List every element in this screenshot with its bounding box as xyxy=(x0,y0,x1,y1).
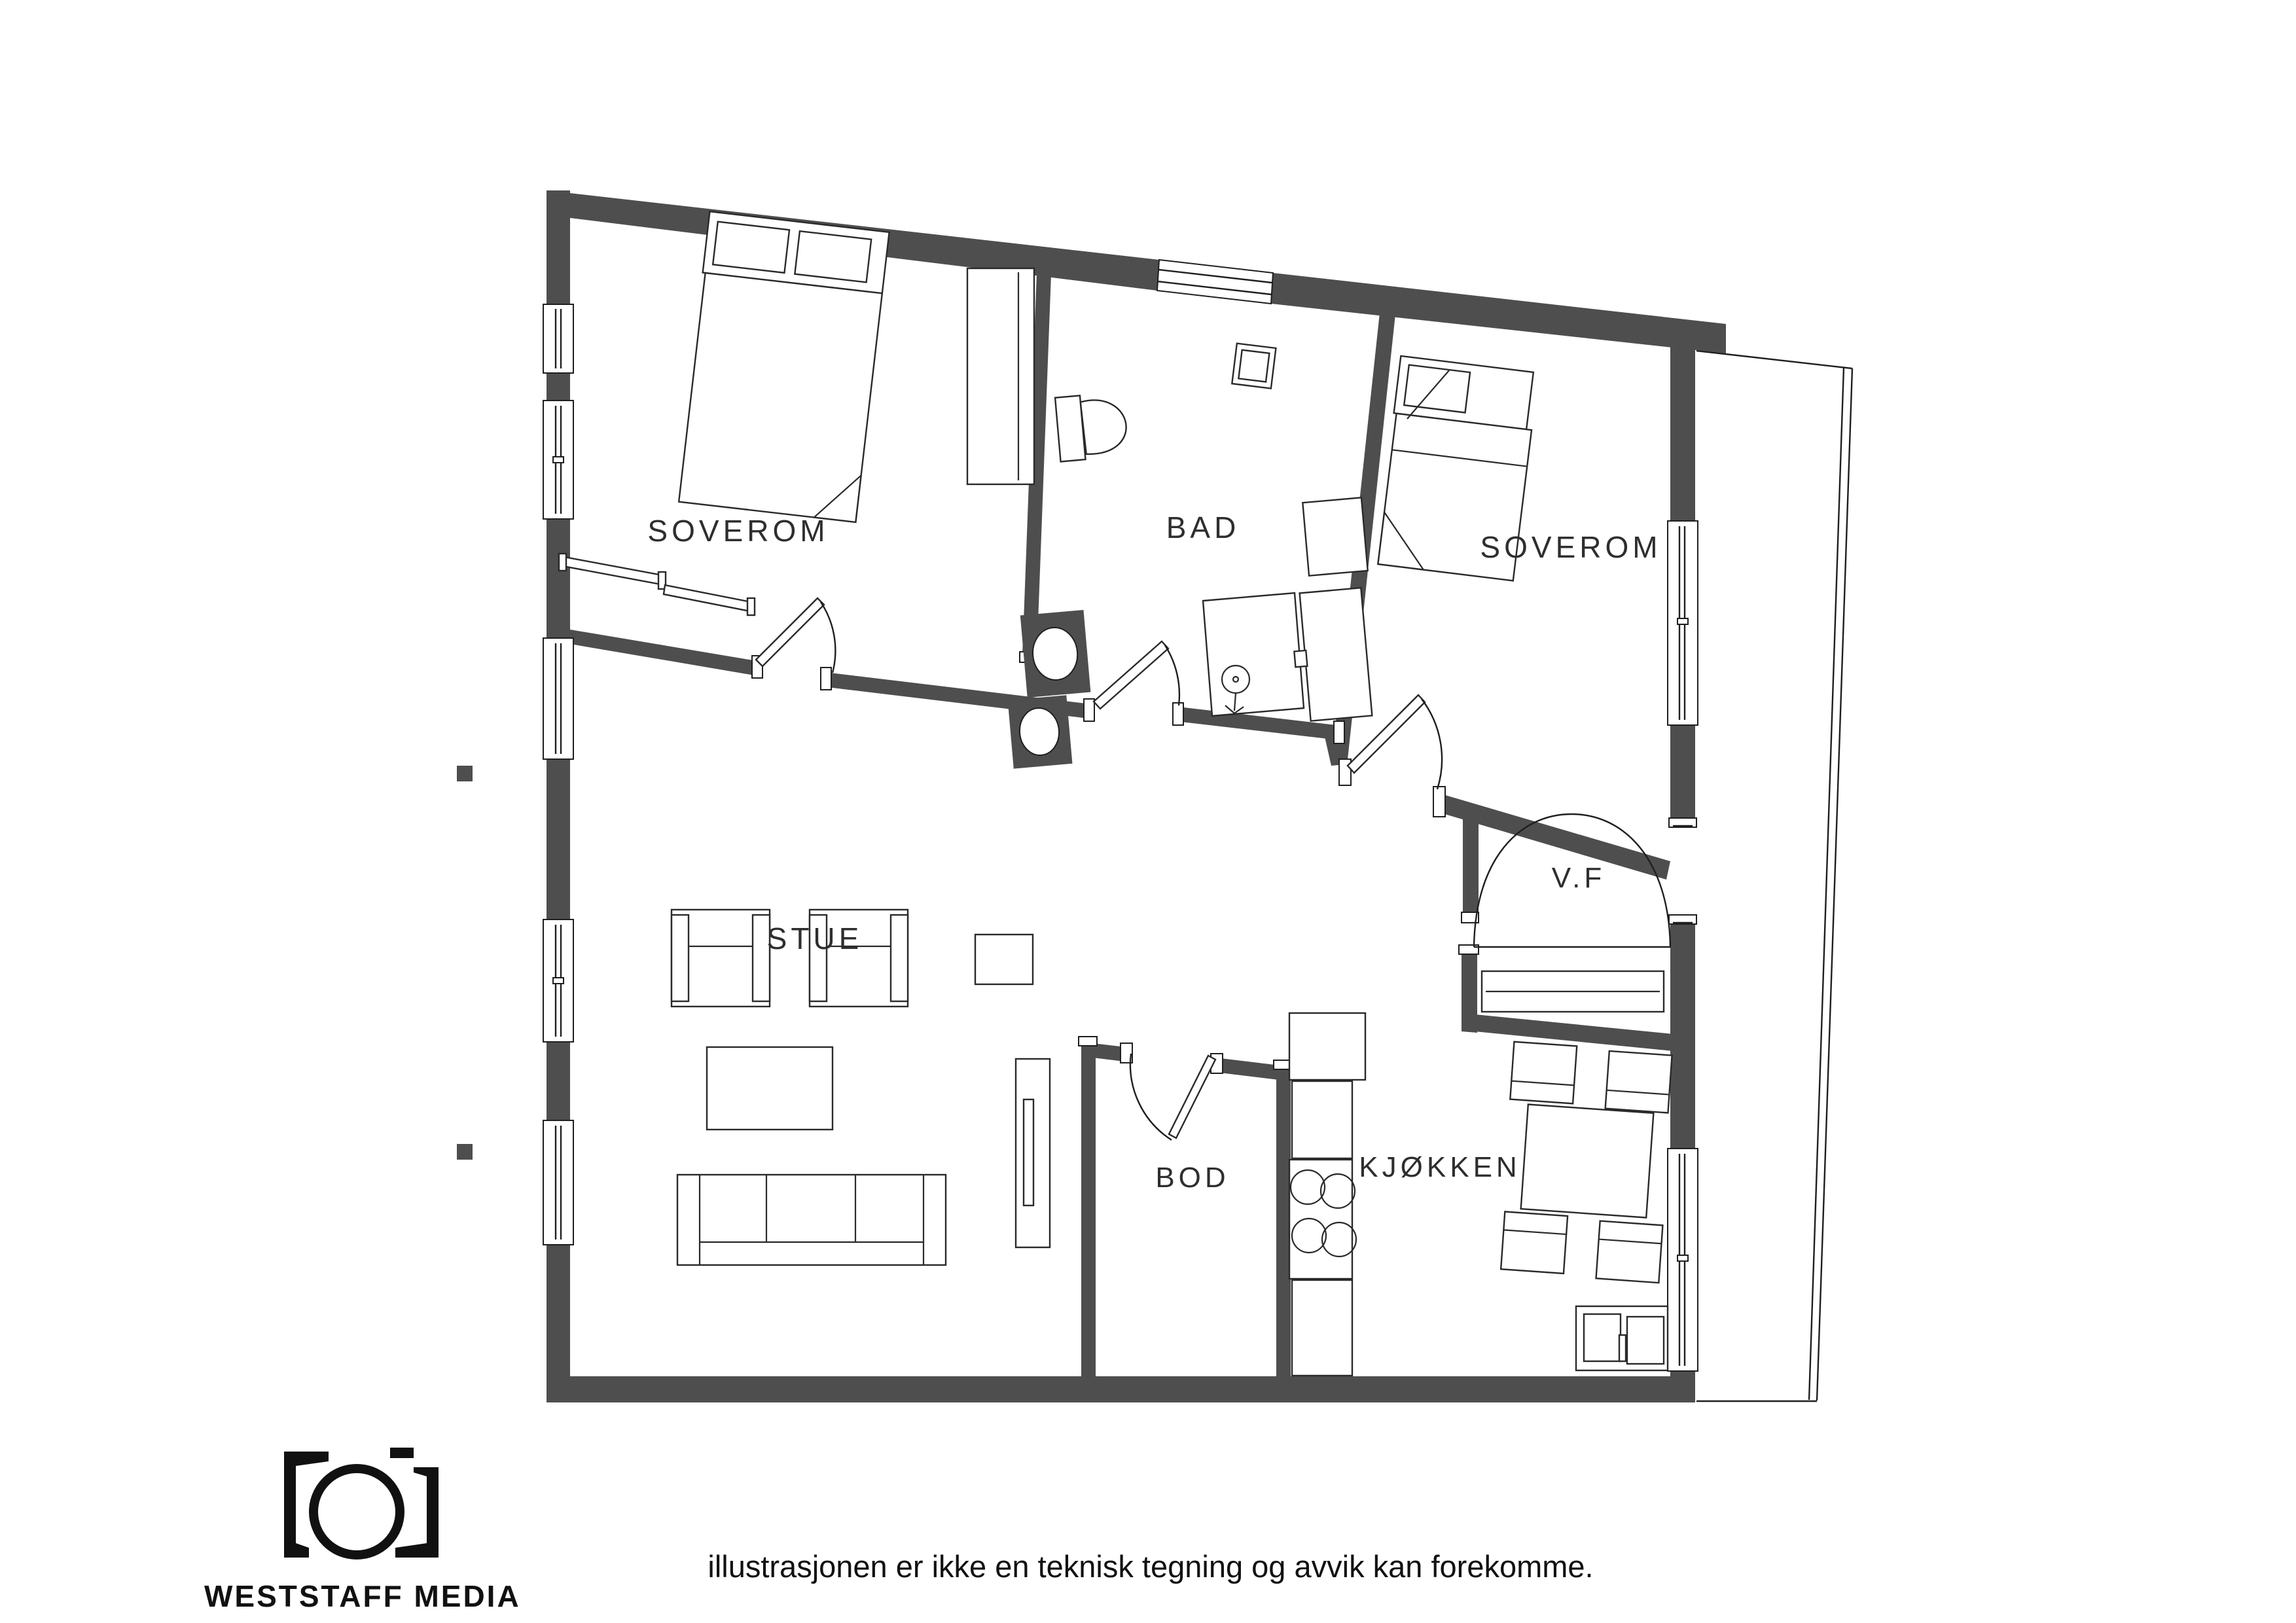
entry-closet xyxy=(1482,971,1664,1012)
coffee-table xyxy=(707,1047,833,1130)
stove xyxy=(1289,1160,1356,1279)
plan-marker-bottom xyxy=(457,1144,473,1160)
bathroom-sink xyxy=(1232,344,1276,389)
room-label-entry: V.F xyxy=(1552,862,1605,894)
window-left-4 xyxy=(543,919,573,1042)
kitchen-sink xyxy=(1576,1306,1668,1370)
room-label-bedroom2: SOVEROM xyxy=(1480,530,1661,564)
window-left-2 xyxy=(543,401,573,519)
kitchen-counter-2 xyxy=(1292,1280,1352,1376)
double-bed xyxy=(676,211,889,522)
side-table xyxy=(975,935,1033,984)
room-label-bedroom1: SOVEROM xyxy=(647,514,829,548)
footer: WESTSTAFF MEDIA illustrasjonen er ikke e… xyxy=(204,1448,1594,1613)
kitchen-cabinet-top xyxy=(1289,1013,1365,1080)
room-label-living: STUE xyxy=(767,921,863,955)
dining-chair xyxy=(1596,1221,1663,1283)
sofa xyxy=(677,1175,946,1265)
room-label-bathroom: BAD xyxy=(1166,510,1240,544)
window-left-3 xyxy=(543,638,573,759)
room-label-kitchen: KJØKKEN xyxy=(1359,1151,1520,1183)
dining-table xyxy=(1521,1105,1654,1218)
camera-logo-icon xyxy=(284,1448,439,1558)
window-left-5 xyxy=(543,1120,573,1245)
tv-bench xyxy=(1016,1059,1050,1247)
window-right-1 xyxy=(1668,521,1698,725)
disclaimer-text: illustrasjonen er ikke en teknisk tegnin… xyxy=(708,1549,1593,1584)
bathroom-cabinet xyxy=(1302,497,1367,575)
dining-set xyxy=(1498,1042,1675,1283)
door-storage xyxy=(1130,1054,1215,1140)
kitchen-counter-1 xyxy=(1292,1081,1352,1158)
door-bathroom xyxy=(1094,641,1179,709)
floor-plan-page: SOVEROM BAD SOVEROM V.F STUE BOD KJØKKEN… xyxy=(0,0,2296,1623)
kitchen-furniture xyxy=(1289,1013,1675,1376)
dining-chair xyxy=(1501,1211,1568,1273)
entry-door-gap xyxy=(1673,826,1693,923)
window-top xyxy=(1157,260,1273,304)
dining-chair xyxy=(1510,1042,1577,1103)
floor-plan-svg: SOVEROM BAD SOVEROM V.F STUE BOD KJØKKEN… xyxy=(0,0,2296,1623)
room-label-storage: BOD xyxy=(1155,1162,1229,1194)
shower xyxy=(1203,593,1304,716)
plumbing-shafts xyxy=(1008,610,1091,769)
bedroom1-furniture xyxy=(559,211,1034,615)
wardrobe-bedroom1 xyxy=(967,268,1034,484)
toilet xyxy=(1055,392,1128,462)
door-bedroom1 xyxy=(756,598,835,673)
balcony-outline xyxy=(1696,351,1852,1401)
clothes-rail xyxy=(559,554,755,615)
armchair-1 xyxy=(672,910,770,1007)
window-right-2 xyxy=(1668,1149,1698,1371)
window-left-1 xyxy=(543,304,573,373)
brand-text: WESTSTAFF MEDIA xyxy=(204,1579,521,1613)
dining-chair xyxy=(1605,1051,1672,1113)
plan-marker-top xyxy=(457,766,473,781)
living-room-furniture xyxy=(672,910,1050,1265)
